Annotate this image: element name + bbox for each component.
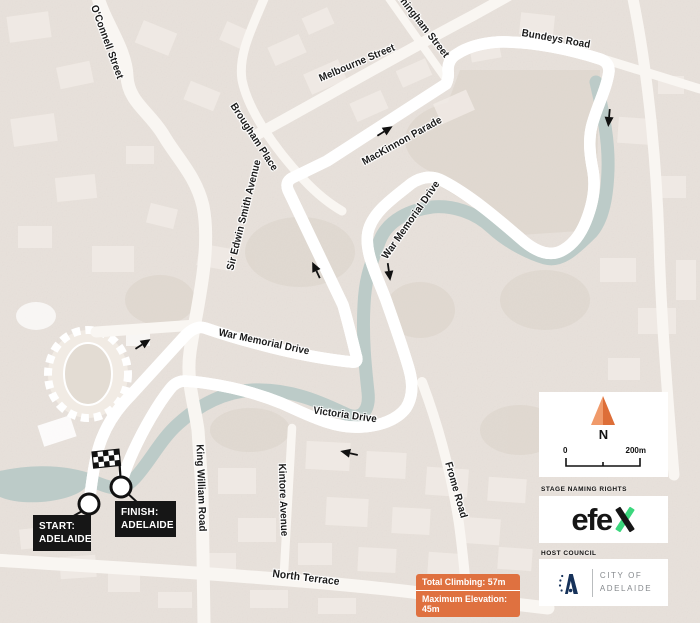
council-name-line1: CITY OF: [600, 570, 652, 582]
maximum-elevation-value: Maximum Elevation: 45m: [416, 590, 520, 617]
total-climbing-value: Total Climbing: 57m: [416, 574, 520, 590]
efex-logo-text: efe: [571, 502, 611, 538]
council-header: HOST COUNCIL: [541, 550, 596, 557]
finish-label-box: FINISH: ADELAIDE: [115, 501, 176, 537]
start-label-line2: ADELAIDE: [39, 533, 85, 546]
start-label-box: START: ADELAIDE: [33, 515, 91, 551]
finish-point-marker: [111, 477, 131, 497]
start-point-marker: [79, 494, 99, 514]
sponsor-logo-box: efe: [539, 496, 668, 543]
scale-bar: 0 200m: [539, 446, 668, 472]
sponsor-header: STAGE NAMING RIGHTS: [541, 486, 627, 493]
council-logo-box: CITY OF ADELAIDE: [539, 559, 668, 606]
logo-divider: [592, 569, 593, 597]
finish-label-line1: FINISH:: [121, 506, 170, 519]
compass-scale-box: N 0 200m: [539, 392, 668, 477]
race-stage-map: O'Connell Street Brougham Place Melbourn…: [0, 0, 700, 623]
scale-bar-icon: [539, 446, 668, 472]
council-name-line2: ADELAIDE: [600, 583, 652, 595]
checkered-flag-icon: [92, 449, 121, 468]
finish-label-line2: ADELAIDE: [121, 519, 170, 532]
north-arrow-icon: [539, 392, 668, 426]
climbing-stats-box: Total Climbing: 57m Maximum Elevation: 4…: [416, 574, 520, 617]
north-label: N: [599, 427, 608, 442]
efex-logo: efe: [539, 496, 668, 543]
adelaide-a-icon: [555, 568, 585, 598]
city-of-adelaide-logo: CITY OF ADELAIDE: [539, 559, 668, 606]
road-war-memorial-west: [96, 325, 196, 332]
efex-x-glyph: [614, 506, 636, 533]
street-label-kintore: Kintore Avenue: [276, 463, 291, 536]
start-label-line1: START:: [39, 520, 85, 533]
